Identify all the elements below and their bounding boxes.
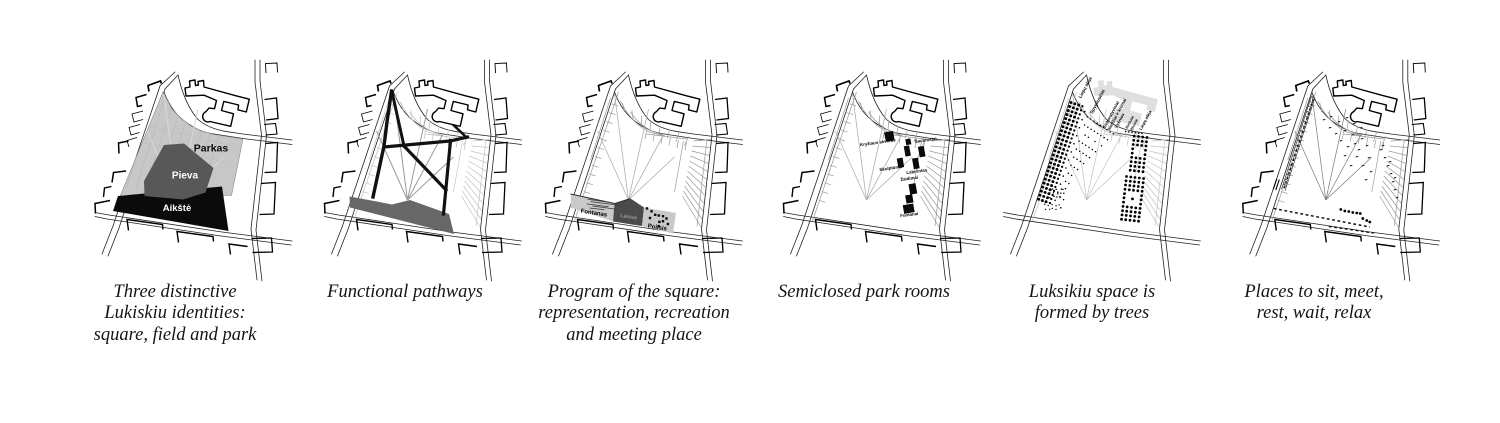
svg-text:Fontanai: Fontanai: [900, 211, 919, 218]
svg-text:Parkas: Parkas: [194, 143, 229, 155]
svg-text:Žaidimai: Žaidimai: [900, 175, 918, 182]
svg-text:Skulptūros: Skulptūros: [879, 164, 903, 172]
svg-text:Šachmatai: Šachmatai: [914, 136, 936, 144]
svg-text:Liepų alėja: Liepų alėja: [1077, 76, 1093, 99]
svg-text:Aikštė: Aikštė: [163, 203, 192, 214]
svg-text:Pieva: Pieva: [172, 171, 199, 182]
